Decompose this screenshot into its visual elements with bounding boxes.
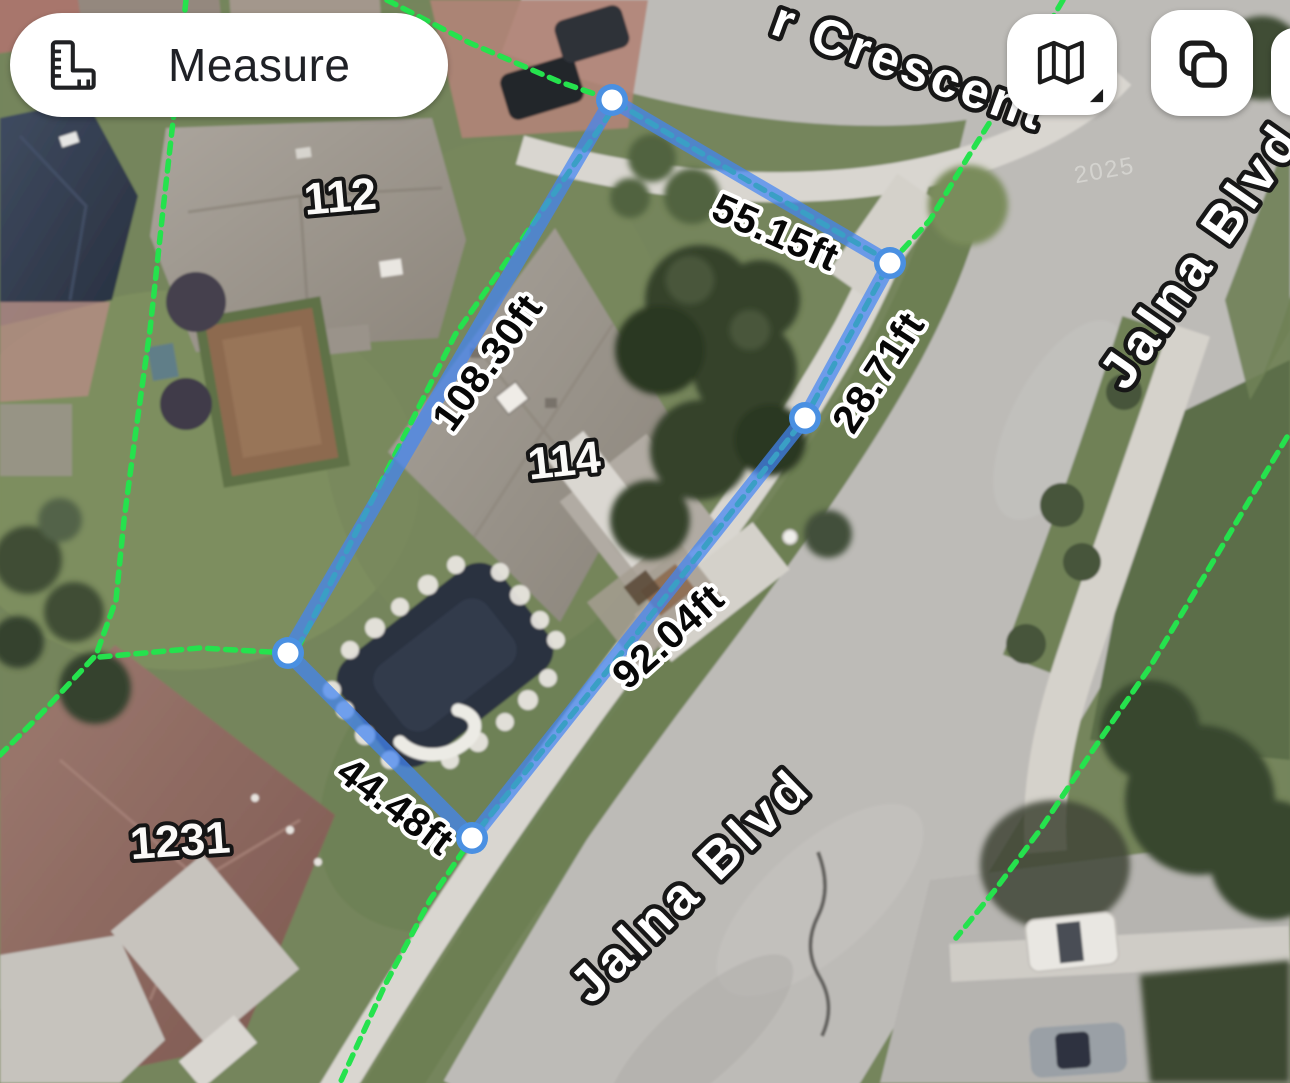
partially-visible-button[interactable] [1271, 28, 1290, 116]
vertex-handle-5[interactable] [272, 637, 304, 669]
address-label-112: 112 [302, 168, 379, 225]
copy-view-button[interactable] [1151, 10, 1253, 116]
expand-corner-icon [1089, 88, 1104, 103]
ruler-square-icon [42, 36, 100, 94]
measure-button[interactable]: Measure [10, 13, 448, 117]
copy-layers-icon [1174, 35, 1230, 91]
vertex-handle-4[interactable] [456, 822, 488, 854]
address-label-1231: 1231 [128, 811, 231, 869]
folded-map-icon [1034, 39, 1090, 91]
utility-dot [783, 530, 797, 544]
map-type-button[interactable] [1007, 14, 1117, 115]
vertex-handle-2[interactable] [874, 247, 906, 279]
measure-app-screen: r Crescent Jalna Blvd Jalna Blvd 112 114… [0, 0, 1290, 1083]
measure-button-label: Measure [168, 38, 350, 92]
vertex-handle-3[interactable] [789, 402, 821, 434]
vertex-handle-1[interactable] [596, 84, 628, 116]
satellite-map[interactable]: r Crescent Jalna Blvd Jalna Blvd 112 114… [0, 0, 1290, 1083]
address-label-114: 114 [525, 431, 603, 489]
